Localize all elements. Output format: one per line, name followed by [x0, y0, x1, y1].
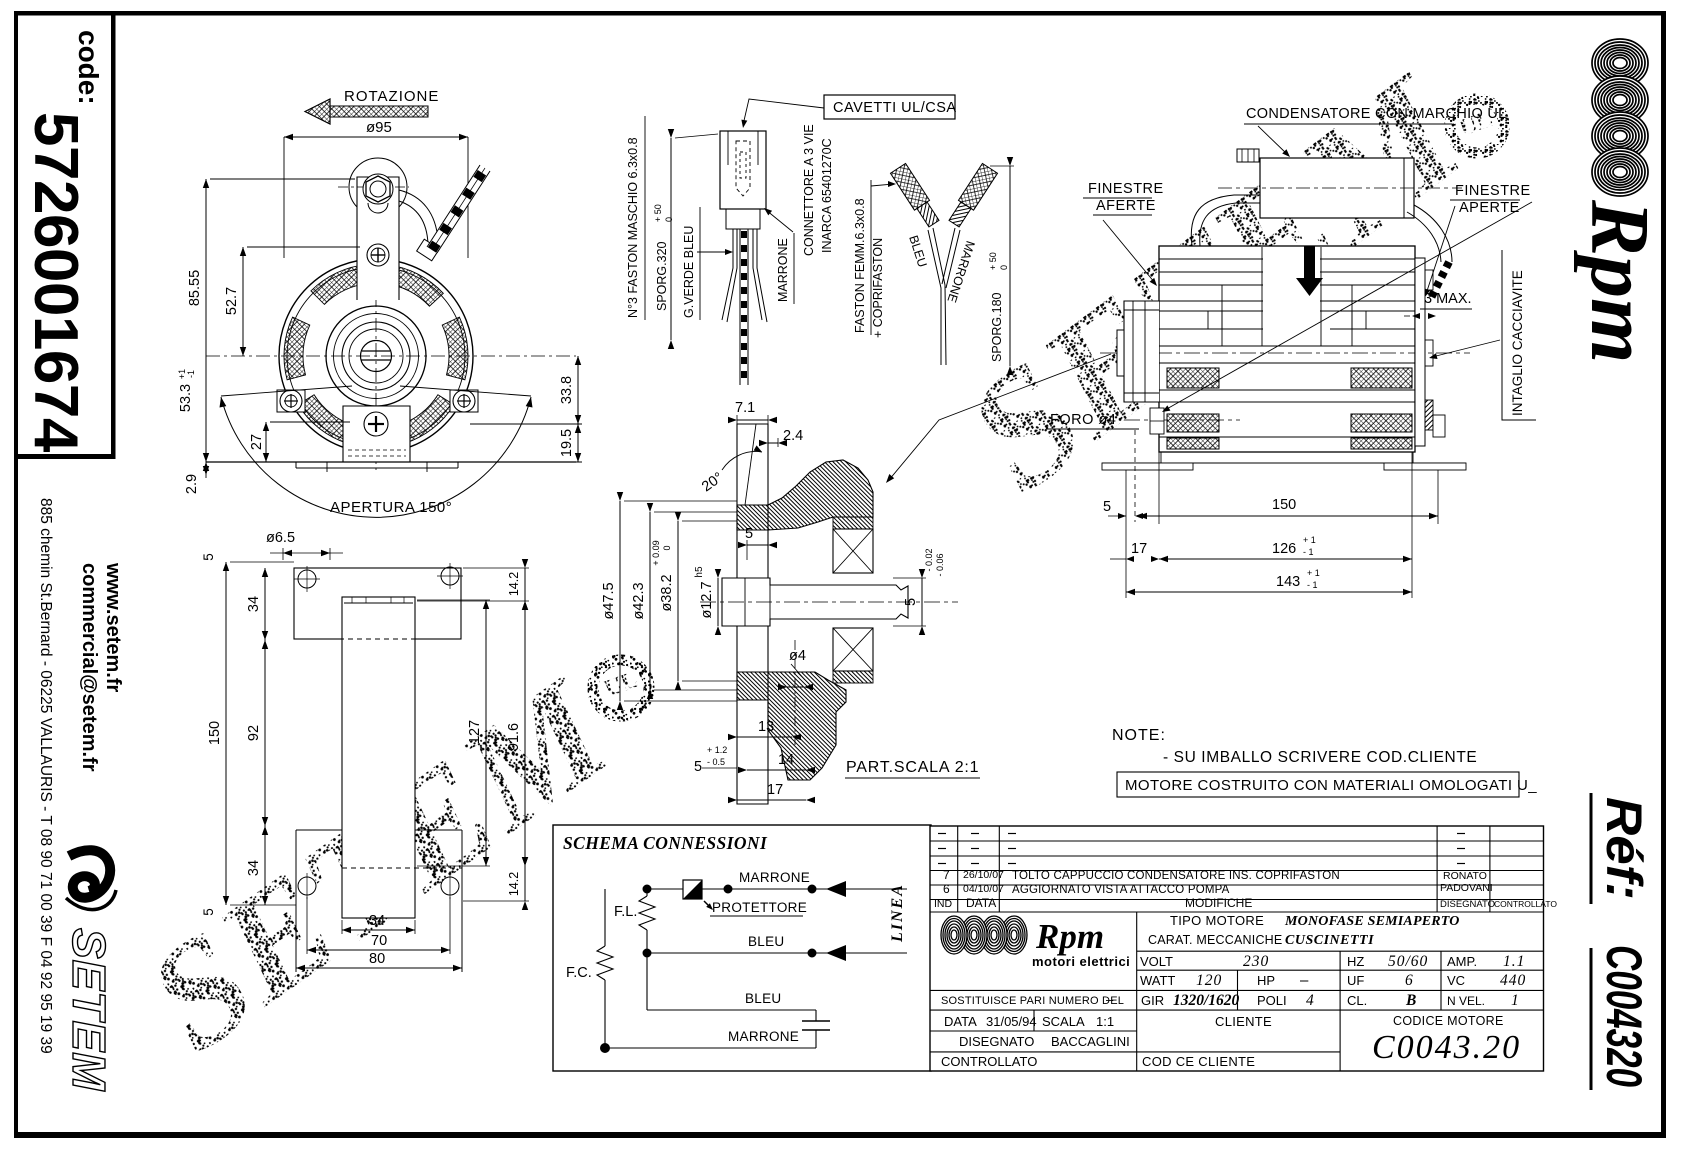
svg-text:PADOVANI: PADOVANI: [1440, 882, 1493, 894]
svg-text:+ 50: + 50: [988, 252, 998, 270]
svg-text:+ 1.2: + 1.2: [707, 745, 727, 755]
svg-text:52.7: 52.7: [224, 287, 240, 315]
svg-text:5: 5: [694, 759, 702, 775]
svg-text:C0043.20: C0043.20: [1372, 1029, 1521, 1066]
svg-text:VC: VC: [1447, 973, 1465, 988]
svg-text:–: –: [1106, 992, 1114, 1007]
svg-text:LINEA: LINEA: [889, 883, 906, 943]
svg-text:150: 150: [1272, 497, 1296, 513]
svg-text:91.6: 91.6: [506, 723, 522, 751]
svg-text:17: 17: [767, 782, 783, 798]
svg-text:0: 0: [662, 545, 672, 550]
svg-text:17: 17: [1131, 541, 1147, 557]
svg-text:F.C.: F.C.: [566, 965, 592, 981]
svg-text:CONTROLLATO: CONTROLLATO: [941, 1054, 1037, 1069]
svg-text:SCALA: SCALA: [1042, 1014, 1085, 1029]
svg-text:CUSCINETTI: CUSCINETTI: [1285, 933, 1374, 948]
svg-text:INTAGLIO CACCIAVITE: INTAGLIO CACCIAVITE: [1510, 270, 1525, 416]
svg-text:POLI: POLI: [1257, 993, 1287, 1008]
svg-text:80: 80: [369, 951, 385, 967]
svg-text:www.setem.fr: www.setem.fr: [102, 562, 124, 693]
svg-text:MOTORE COSTRUITO CON MATERIALI: MOTORE COSTRUITO CON MATERIALI OMOLOGATI…: [1125, 777, 1537, 794]
svg-text:APERTURA 150°: APERTURA 150°: [330, 499, 452, 516]
svg-text:PART.SCALA 2:1: PART.SCALA 2:1: [846, 759, 979, 776]
svg-text:CLIENTE: CLIENTE: [1215, 1014, 1272, 1029]
svg-text:DISEGNATO: DISEGNATO: [959, 1034, 1034, 1049]
svg-text:ø38.2: ø38.2: [659, 574, 675, 611]
svg-text:MARRONE: MARRONE: [739, 870, 810, 885]
svg-text:7.1: 7.1: [735, 400, 755, 416]
svg-text:04/10/07: 04/10/07: [963, 883, 1004, 895]
svg-text:1:1: 1:1: [1096, 1014, 1114, 1029]
svg-text:WATT: WATT: [1140, 973, 1175, 988]
svg-text:1320/1620: 1320/1620: [1173, 992, 1240, 1009]
svg-text:MARRONE: MARRONE: [728, 1029, 799, 1044]
svg-text:INARCA 65401270C: INARCA 65401270C: [820, 138, 834, 253]
svg-text:TIPO MOTORE: TIPO MOTORE: [1170, 913, 1264, 928]
svg-text:34: 34: [369, 913, 385, 929]
svg-text:- 0.02: - 0.02: [924, 548, 934, 571]
svg-text:SCHEMA CONNESSIONI: SCHEMA CONNESSIONI: [563, 833, 768, 853]
svg-text:440: 440: [1500, 972, 1526, 989]
svg-text:143: 143: [1276, 574, 1300, 590]
svg-text:33.8: 33.8: [559, 376, 575, 404]
svg-text:IND: IND: [934, 898, 953, 910]
svg-text:+ 1: + 1: [1307, 568, 1320, 578]
svg-text:5: 5: [745, 526, 753, 542]
svg-text:AFERTE: AFERTE: [1096, 198, 1156, 214]
svg-text:AGGIORNATO VISTA ATTACCO POMPA: AGGIORNATO VISTA ATTACCO POMPA: [1012, 884, 1230, 896]
svg-text:N VEL.: N VEL.: [1447, 994, 1485, 1008]
svg-text:MARRONE: MARRONE: [776, 238, 790, 302]
svg-text:34: 34: [246, 596, 262, 612]
svg-text:TOLTO CAPPUCCIO CONDENSATORE I: TOLTO CAPPUCCIO CONDENSATORE INS. COPRIF…: [1012, 870, 1340, 882]
svg-text:14.2: 14.2: [507, 872, 521, 896]
svg-text:Rpm: Rpm: [1573, 199, 1666, 363]
svg-text:127: 127: [467, 720, 483, 744]
svg-text:N°3 FASTON MASCHIO 6.3x0.8: N°3 FASTON MASCHIO 6.3x0.8: [626, 137, 640, 318]
svg-text:- 0.5: - 0.5: [707, 757, 725, 767]
svg-text:MONOFASE SEMIAPERTO: MONOFASE SEMIAPERTO: [1284, 914, 1460, 929]
svg-text:commercial@setem.fr: commercial@setem.fr: [78, 563, 100, 772]
svg-text:HZ: HZ: [1347, 954, 1364, 969]
svg-text:1: 1: [1511, 992, 1519, 1009]
svg-text:SETEM: SETEM: [63, 928, 115, 1092]
svg-text:2.9: 2.9: [184, 474, 200, 494]
svg-text:ø12.7: ø12.7: [699, 581, 715, 618]
svg-text:53.3: 53.3: [178, 384, 194, 412]
svg-text:ø47.5: ø47.5: [601, 582, 617, 619]
svg-text:BLEU: BLEU: [745, 991, 781, 1006]
svg-text:AMP.: AMP.: [1447, 954, 1477, 969]
svg-text:14: 14: [778, 752, 794, 768]
svg-text:19.5: 19.5: [559, 429, 575, 457]
svg-text:RONATO: RONATO: [1443, 870, 1487, 882]
svg-text:FASTON FEMM.6.3x0.8: FASTON FEMM.6.3x0.8: [853, 198, 867, 333]
svg-text:126: 126: [1272, 541, 1296, 557]
svg-text:+ COPRIFASTON: + COPRIFASTON: [871, 238, 885, 338]
svg-text:–: –: [1300, 972, 1309, 989]
svg-text:+ 50: + 50: [653, 204, 663, 222]
svg-text:C004320: C004320: [1596, 945, 1652, 1087]
svg-text:120: 120: [1196, 972, 1222, 989]
svg-text:7: 7: [943, 868, 950, 882]
svg-text:3 MAX.: 3 MAX.: [1424, 291, 1472, 307]
svg-text:CODICE MOTORE: CODICE MOTORE: [1393, 1014, 1504, 1028]
svg-text:GIR: GIR: [1141, 993, 1164, 1008]
svg-text:+ 0.09: + 0.09: [651, 540, 661, 565]
svg-text:G.VERDE BLEU: G.VERDE BLEU: [682, 226, 696, 318]
svg-text:0: 0: [999, 265, 1009, 270]
svg-text:HP: HP: [1257, 973, 1275, 988]
svg-text:FORO ø4: FORO ø4: [1050, 412, 1116, 428]
svg-text:CAVETTI UL/CSA: CAVETTI UL/CSA: [833, 100, 957, 116]
svg-text:- 1: - 1: [1303, 547, 1314, 557]
svg-text:B: B: [1405, 992, 1416, 1009]
svg-text:150: 150: [207, 721, 223, 745]
svg-text:26/10/07: 26/10/07: [963, 869, 1004, 881]
svg-text:2.4: 2.4: [783, 428, 803, 444]
svg-text:BLEU: BLEU: [748, 934, 784, 949]
svg-text:CONNETTORE A 3 VIE: CONNETTORE A 3 VIE: [802, 124, 816, 256]
svg-text:ø42.3: ø42.3: [631, 582, 647, 619]
svg-text:DISEGNATO: DISEGNATO: [1440, 899, 1495, 910]
svg-text:ø6.5: ø6.5: [266, 530, 295, 546]
svg-text:- SU IMBALLO SCRIVERE COD.CLIE: - SU IMBALLO SCRIVERE COD.CLIENTE: [1163, 749, 1477, 766]
svg-text:14.2: 14.2: [507, 572, 521, 596]
svg-text:230: 230: [1243, 953, 1269, 970]
svg-text:- 0.06: - 0.06: [935, 553, 945, 576]
svg-text:FINESTRE: FINESTRE: [1088, 181, 1164, 197]
svg-text:BACCAGLINI: BACCAGLINI: [1051, 1034, 1130, 1049]
svg-text:1.1: 1.1: [1503, 953, 1525, 970]
svg-text:5726001674: 5726001674: [21, 112, 90, 453]
svg-text:DATA: DATA: [966, 896, 996, 910]
svg-text:code:: code:: [73, 30, 104, 105]
svg-text:VOLT: VOLT: [1140, 954, 1173, 969]
svg-text:COD CE CLIENTE: COD CE CLIENTE: [1142, 1054, 1255, 1069]
svg-text:PROTETTORE: PROTETTORE: [712, 900, 807, 915]
svg-text:Réf:: Réf:: [1596, 797, 1652, 900]
svg-text:+ 1: + 1: [1303, 535, 1316, 545]
svg-text:6: 6: [1405, 972, 1414, 989]
svg-text:CONDENSATORE CON MARCHIO UL: CONDENSATORE CON MARCHIO UL: [1246, 106, 1507, 122]
svg-text:4: 4: [1306, 992, 1314, 1009]
svg-text:92: 92: [246, 725, 262, 741]
svg-text:5: 5: [903, 598, 919, 606]
svg-text:885 chemin St.Bernard - 0622: 885 chemin St.Bernard - 06225 VALLAURIS …: [37, 498, 54, 1054]
svg-text:DATA: DATA: [944, 1014, 977, 1029]
svg-text:MODIFICHE: MODIFICHE: [1185, 896, 1252, 910]
svg-text:6: 6: [943, 882, 950, 896]
svg-text:CL.: CL.: [1347, 993, 1367, 1008]
svg-text:NOTE:: NOTE:: [1112, 727, 1166, 744]
svg-text:ROTAZIONE: ROTAZIONE: [344, 88, 439, 105]
svg-text:FINESTRE: FINESTRE: [1455, 183, 1531, 199]
svg-text:85.55: 85.55: [187, 270, 203, 306]
svg-text:31/05/94: 31/05/94: [986, 1014, 1037, 1029]
svg-text:CARAT. MECCANICHE: CARAT. MECCANICHE: [1148, 933, 1282, 947]
svg-text:SPORG.320: SPORG.320: [655, 241, 669, 311]
svg-text:h5: h5: [694, 566, 705, 578]
svg-text:0: 0: [664, 217, 674, 222]
svg-text:UF: UF: [1347, 973, 1364, 988]
svg-text:CONTROLLATO: CONTROLLATO: [1494, 899, 1557, 909]
svg-text:motori elettrici: motori elettrici: [1032, 954, 1130, 969]
svg-text:34: 34: [246, 860, 262, 876]
svg-text:5: 5: [201, 908, 216, 916]
svg-text:50/60: 50/60: [1388, 953, 1428, 970]
svg-text:5: 5: [1103, 499, 1111, 515]
svg-text:SPORG.180: SPORG.180: [990, 292, 1004, 362]
svg-text:13: 13: [758, 719, 774, 735]
svg-text:70: 70: [371, 933, 387, 949]
svg-text:Rpm: Rpm: [1035, 917, 1104, 956]
svg-text:27: 27: [249, 434, 265, 450]
svg-text:F.L.: F.L.: [614, 904, 637, 920]
svg-text:SOSTITUISCE PARI NUMERO DEL: SOSTITUISCE PARI NUMERO DEL: [941, 995, 1124, 1007]
svg-text:-1: -1: [186, 370, 196, 378]
svg-text:ø4: ø4: [789, 648, 806, 664]
svg-text:- 1: - 1: [1307, 580, 1318, 590]
svg-text:ø95: ø95: [366, 119, 392, 136]
svg-text:5: 5: [201, 553, 216, 561]
